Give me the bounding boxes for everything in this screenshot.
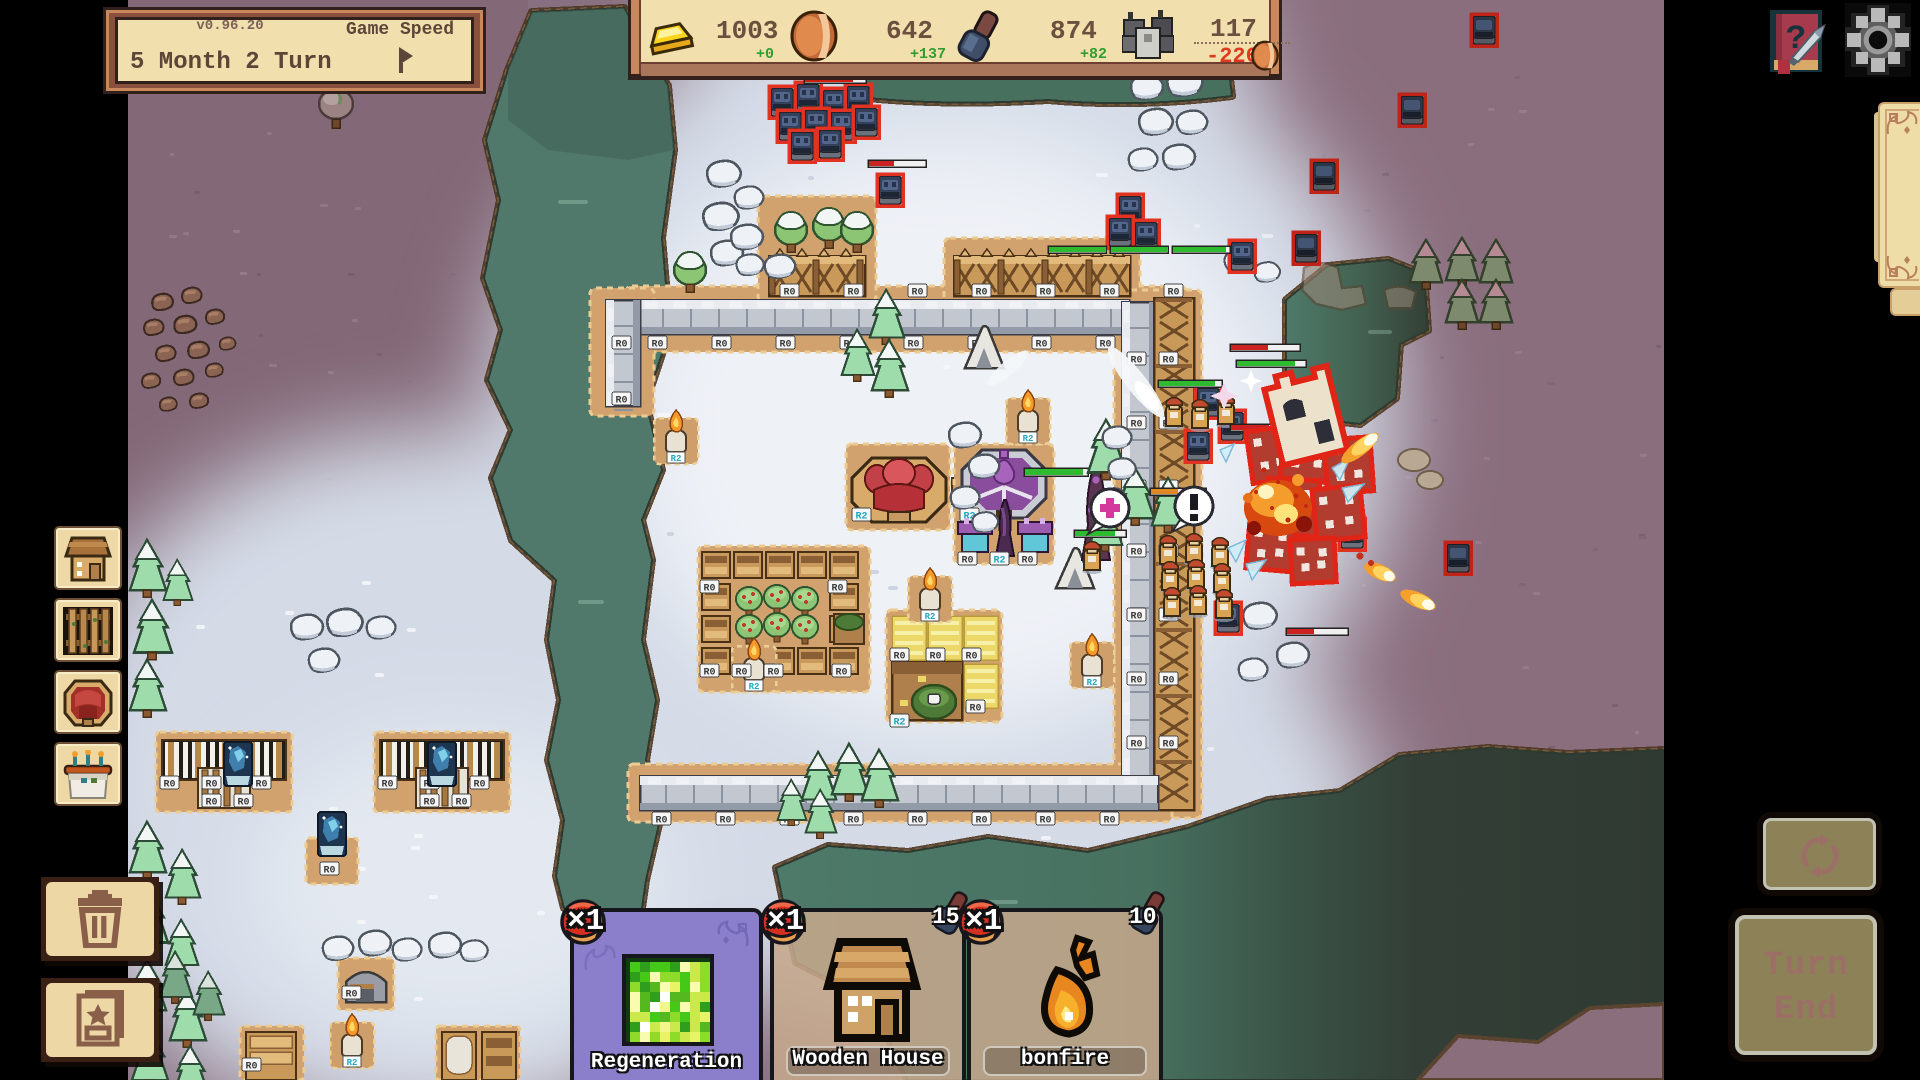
svg-text:R0: R0 [651, 340, 663, 351]
svg-text:R2: R2 [993, 556, 1005, 567]
svg-text:R0: R0 [1130, 740, 1142, 751]
svg-text:R0: R0 [961, 556, 973, 567]
svg-text:R0: R0 [1130, 676, 1142, 687]
svg-text:R0: R0 [911, 288, 923, 299]
svg-text:R0: R0 [907, 340, 919, 351]
svg-text:R0: R0 [255, 780, 267, 791]
svg-text:R0: R0 [1162, 740, 1174, 751]
svg-text:R0: R0 [965, 652, 977, 663]
svg-text:R0: R0 [323, 866, 335, 877]
svg-text:R0: R0 [345, 990, 357, 1001]
svg-text:R0: R0 [911, 816, 923, 827]
svg-text:R2: R2 [855, 512, 867, 523]
svg-text:R0: R0 [615, 396, 627, 407]
svg-text:R0: R0 [1103, 816, 1115, 827]
svg-text:R0: R0 [473, 780, 485, 791]
svg-text:R0: R0 [831, 584, 843, 595]
svg-text:R0: R0 [1167, 288, 1179, 299]
svg-text:R0: R0 [1035, 340, 1047, 351]
svg-text:R0: R0 [835, 668, 847, 679]
svg-text:R0: R0 [163, 780, 175, 791]
svg-text:R0: R0 [381, 780, 393, 791]
svg-text:R0: R0 [929, 652, 941, 663]
svg-text:R0: R0 [847, 288, 859, 299]
svg-text:R0: R0 [615, 340, 627, 351]
svg-text:R0: R0 [847, 816, 859, 827]
svg-text:R0: R0 [1130, 548, 1142, 559]
svg-text:R0: R0 [245, 1062, 257, 1073]
svg-text:R0: R0 [205, 780, 217, 791]
svg-text:R0: R0 [735, 668, 747, 679]
svg-text:R0: R0 [1103, 288, 1115, 299]
svg-text:R0: R0 [237, 798, 249, 809]
svg-text:R0: R0 [455, 798, 467, 809]
svg-text:R2: R2 [893, 718, 905, 729]
svg-text:R0: R0 [779, 340, 791, 351]
svg-text:R0: R0 [703, 668, 715, 679]
svg-text:R0: R0 [783, 288, 795, 299]
svg-text:R0: R0 [703, 584, 715, 595]
svg-text:R0: R0 [655, 816, 667, 827]
svg-text:R0: R0 [1130, 612, 1142, 623]
svg-text:R0: R0 [1162, 356, 1174, 367]
svg-text:R0: R0 [969, 704, 981, 715]
svg-text:R0: R0 [975, 816, 987, 827]
svg-text:R0: R0 [1162, 676, 1174, 687]
svg-text:R0: R0 [1021, 556, 1033, 567]
svg-text:R0: R0 [715, 340, 727, 351]
svg-text:R0: R0 [719, 816, 731, 827]
svg-text:R0: R0 [1039, 288, 1051, 299]
svg-text:R0: R0 [1039, 816, 1051, 827]
svg-text:R0: R0 [975, 288, 987, 299]
svg-text:R0: R0 [205, 798, 217, 809]
svg-text:R0: R0 [423, 798, 435, 809]
svg-text:R0: R0 [893, 652, 905, 663]
svg-text:R0: R0 [1130, 420, 1142, 431]
svg-text:R0: R0 [767, 668, 779, 679]
